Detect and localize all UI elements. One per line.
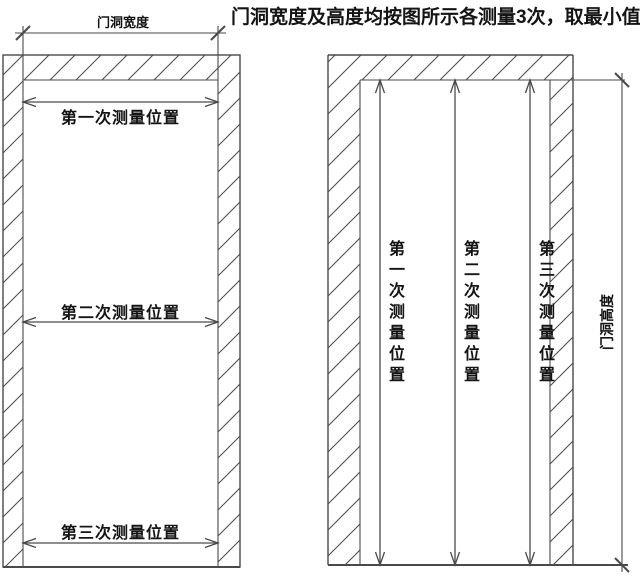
height-measure-label-2: 第二次测量位置 — [457, 240, 481, 400]
measurement-instruction-diagram: 门洞宽度及高度均按图所示各测量3次，取最小值 门洞宽度 第一次测量位置 第二次测… — [0, 0, 640, 577]
height-measure-label-1: 第一次测量位置 — [382, 240, 406, 400]
height-measure-label-3: 第三次测量位置 — [532, 240, 556, 400]
right-wall-hatch-top — [328, 55, 573, 80]
width-measure-label-1: 第一次测量位置 — [23, 104, 218, 128]
left-wall-hatch-top — [3, 55, 240, 80]
width-measure-label-2: 第二次测量位置 — [23, 299, 218, 323]
height-dimension — [615, 73, 629, 572]
right-wall-hatch-left — [328, 80, 360, 565]
door-height-dimension-label: 门洞高度 — [597, 287, 613, 357]
left-wall-hatch-right — [218, 80, 240, 567]
page-title: 门洞宽度及高度均按图所示各测量3次，取最小值 — [231, 2, 640, 29]
left-wall-hatch-left — [3, 80, 23, 567]
door-width-dimension-label: 门洞宽度 — [78, 12, 168, 31]
width-measure-label-3: 第三次测量位置 — [23, 519, 218, 543]
